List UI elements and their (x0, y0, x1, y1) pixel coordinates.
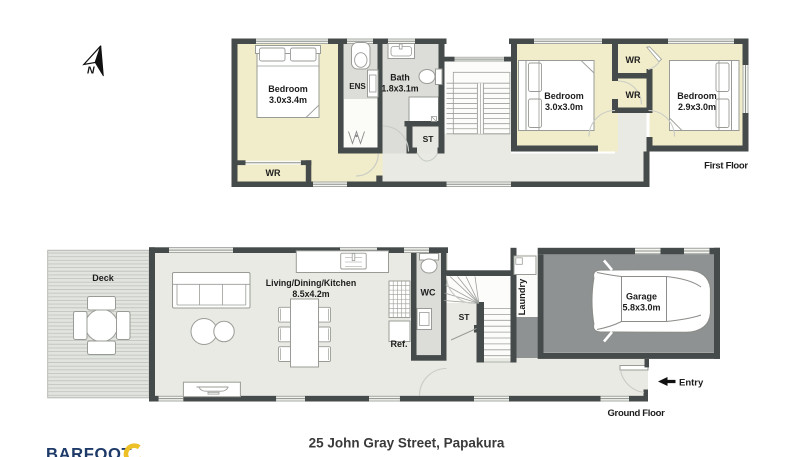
svg-text:Bath: Bath (390, 73, 410, 83)
svg-text:Living/Dining/Kitchen: Living/Dining/Kitchen (266, 278, 356, 288)
svg-text:Bedroom: Bedroom (544, 91, 584, 101)
svg-text:ENS: ENS (349, 82, 366, 91)
svg-text:Deck: Deck (92, 273, 115, 283)
svg-text:Garage: Garage (626, 292, 657, 302)
svg-text:BARFOOT: BARFOOT (46, 445, 132, 457)
svg-text:Bedroom: Bedroom (677, 91, 717, 101)
svg-text:Ground Floor: Ground Floor (607, 408, 665, 419)
svg-text:ST: ST (423, 134, 435, 144)
svg-text:1.8x3.1m: 1.8x3.1m (381, 84, 418, 94)
svg-text:Bedroom: Bedroom (268, 84, 308, 94)
svg-text:WR: WR (266, 168, 281, 178)
svg-text:ST: ST (459, 312, 471, 322)
svg-text:WC: WC (421, 288, 436, 298)
svg-text:Entry: Entry (679, 378, 704, 389)
svg-text:5.8x3.0m: 5.8x3.0m (622, 303, 660, 313)
svg-text:Ref.: Ref. (390, 339, 407, 349)
svg-text:WR: WR (626, 90, 641, 100)
svg-text:WR: WR (626, 55, 641, 65)
svg-text:8.5x4.2m: 8.5x4.2m (292, 289, 329, 299)
svg-text:3.0x3.4m: 3.0x3.4m (269, 95, 307, 105)
svg-text:25 John Gray Street, Papakura: 25 John Gray Street, Papakura (309, 436, 505, 451)
svg-text:First Floor: First Floor (704, 161, 748, 172)
svg-text:2.9x3.0m: 2.9x3.0m (678, 102, 716, 112)
svg-text:3.0x3.0m: 3.0x3.0m (545, 102, 583, 112)
svg-text:N: N (87, 65, 95, 77)
svg-text:Laundry: Laundry (517, 278, 527, 316)
